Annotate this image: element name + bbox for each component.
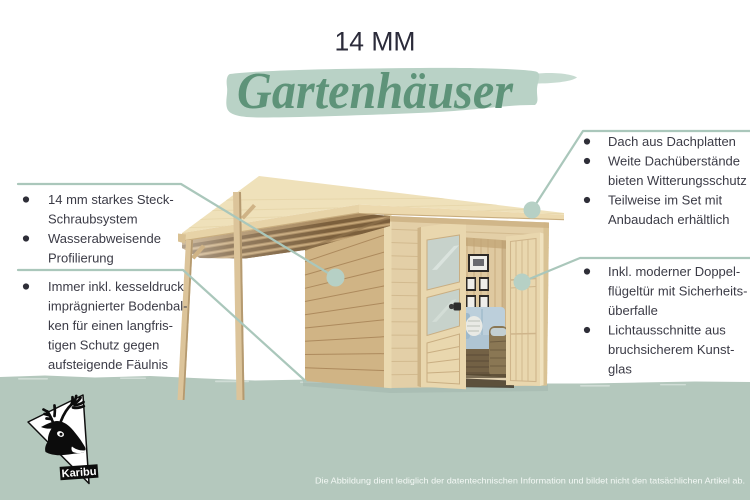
svg-text:bieten Witterungsschutz: bieten Witterungsschutz: [608, 173, 747, 188]
svg-text:Weite Dachüberstände: Weite Dachüberstände: [608, 154, 740, 169]
svg-text:Karibu: Karibu: [61, 466, 97, 480]
svg-text:Profilierung: Profilierung: [48, 251, 114, 266]
svg-text:14 MM: 14 MM: [335, 27, 416, 57]
svg-text:Immer inkl. kesseldruck: Immer inkl. kesseldruck: [48, 279, 184, 294]
svg-text:aufsteigende Fäulnis: aufsteigende Fäulnis: [48, 357, 168, 372]
svg-text:Teilweise im Set mit: Teilweise im Set mit: [608, 193, 723, 208]
svg-text:Die Abbildung dient lediglich: Die Abbildung dient lediglich der datent…: [315, 477, 745, 486]
svg-text:imprägnierter Bodenbal-: imprägnierter Bodenbal-: [48, 299, 187, 314]
svg-text:Dach aus Dachplatten: Dach aus Dachplatten: [608, 134, 736, 149]
svg-text:glas: glas: [608, 362, 632, 377]
svg-text:14 mm starkes Steck-: 14 mm starkes Steck-: [48, 192, 174, 207]
svg-text:Gartenhäuser: Gartenhäuser: [237, 63, 514, 120]
svg-text:flügeltür mit Sicherheits-: flügeltür mit Sicherheits-: [608, 284, 747, 299]
svg-text:bruchsicherem Kunst-: bruchsicherem Kunst-: [608, 342, 734, 357]
svg-text:überfalle: überfalle: [608, 303, 658, 318]
svg-text:Inkl. moderner Doppel-: Inkl. moderner Doppel-: [608, 264, 740, 279]
svg-text:Schraubsystem: Schraubsystem: [48, 212, 138, 227]
svg-text:Lichtausschnitte aus: Lichtausschnitte aus: [608, 323, 726, 338]
svg-text:Wasserabweisende: Wasserabweisende: [48, 231, 161, 246]
svg-text:ken für einen langfris-: ken für einen langfris-: [48, 318, 173, 333]
svg-text:Anbaudach erhältlich: Anbaudach erhältlich: [608, 212, 729, 227]
svg-text:tigen Schutz gegen: tigen Schutz gegen: [48, 338, 159, 353]
